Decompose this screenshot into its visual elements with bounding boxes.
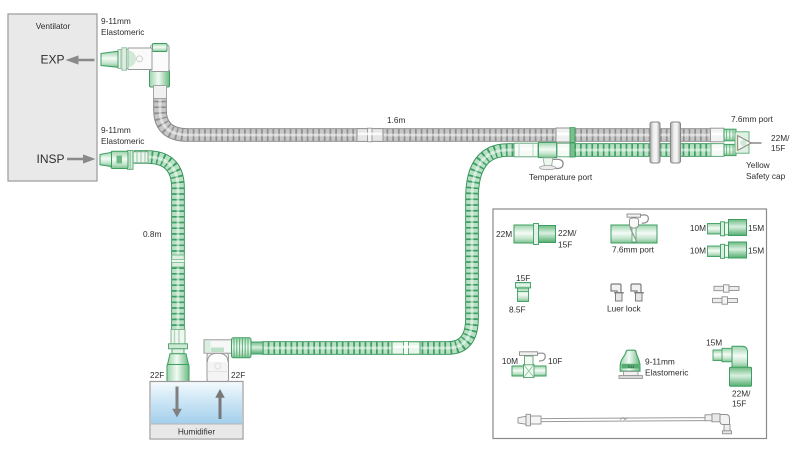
svg-text:8.5F: 8.5F [509,305,526,315]
svg-text:15F: 15F [732,399,746,409]
svg-text:Yellow: Yellow [746,160,771,170]
svg-text:1.6m: 1.6m [387,115,406,125]
svg-text:Elastomeric: Elastomeric [645,368,688,378]
svg-text:9-11mm: 9-11mm [101,16,131,26]
svg-text:7.6mm port: 7.6mm port [731,114,774,124]
svg-text:9-11: 9-11 [628,365,634,369]
svg-text:Ventilator: Ventilator [36,21,71,31]
svg-text:15F: 15F [771,143,785,153]
svg-text:10M: 10M [690,246,706,256]
svg-text:15F: 15F [516,273,530,283]
svg-text:22M: 22M [496,229,512,239]
svg-text:15F: 15F [558,240,572,250]
svg-text:22M/: 22M/ [732,389,751,399]
svg-text:Safety cap: Safety cap [746,171,786,181]
svg-text:Elastomeric: Elastomeric [101,27,144,37]
svg-text:Temperature port: Temperature port [529,172,593,182]
svg-text:7.6mm port: 7.6mm port [612,245,655,255]
svg-text:Humidifier: Humidifier [178,427,216,437]
svg-text:15M: 15M [748,246,764,256]
svg-text:22M/: 22M/ [558,228,577,238]
svg-text:22F: 22F [231,370,245,380]
svg-text:Luer lock: Luer lock [607,304,642,314]
svg-text:10F: 10F [548,356,562,366]
svg-text:22M/: 22M/ [771,133,790,143]
svg-text:INSP: INSP [36,152,64,166]
svg-text:10M: 10M [502,356,518,366]
svg-text:EXP: EXP [40,52,64,66]
svg-text:22F: 22F [150,370,164,380]
svg-text:Elastomeric: Elastomeric [101,136,144,146]
svg-text:15M: 15M [706,338,722,348]
svg-text:10M: 10M [690,223,706,233]
svg-text:9-11mm: 9-11mm [645,357,675,367]
svg-text:9-11mm: 9-11mm [101,125,131,135]
svg-text:0.8m: 0.8m [143,229,162,239]
svg-text:15M: 15M [748,223,764,233]
